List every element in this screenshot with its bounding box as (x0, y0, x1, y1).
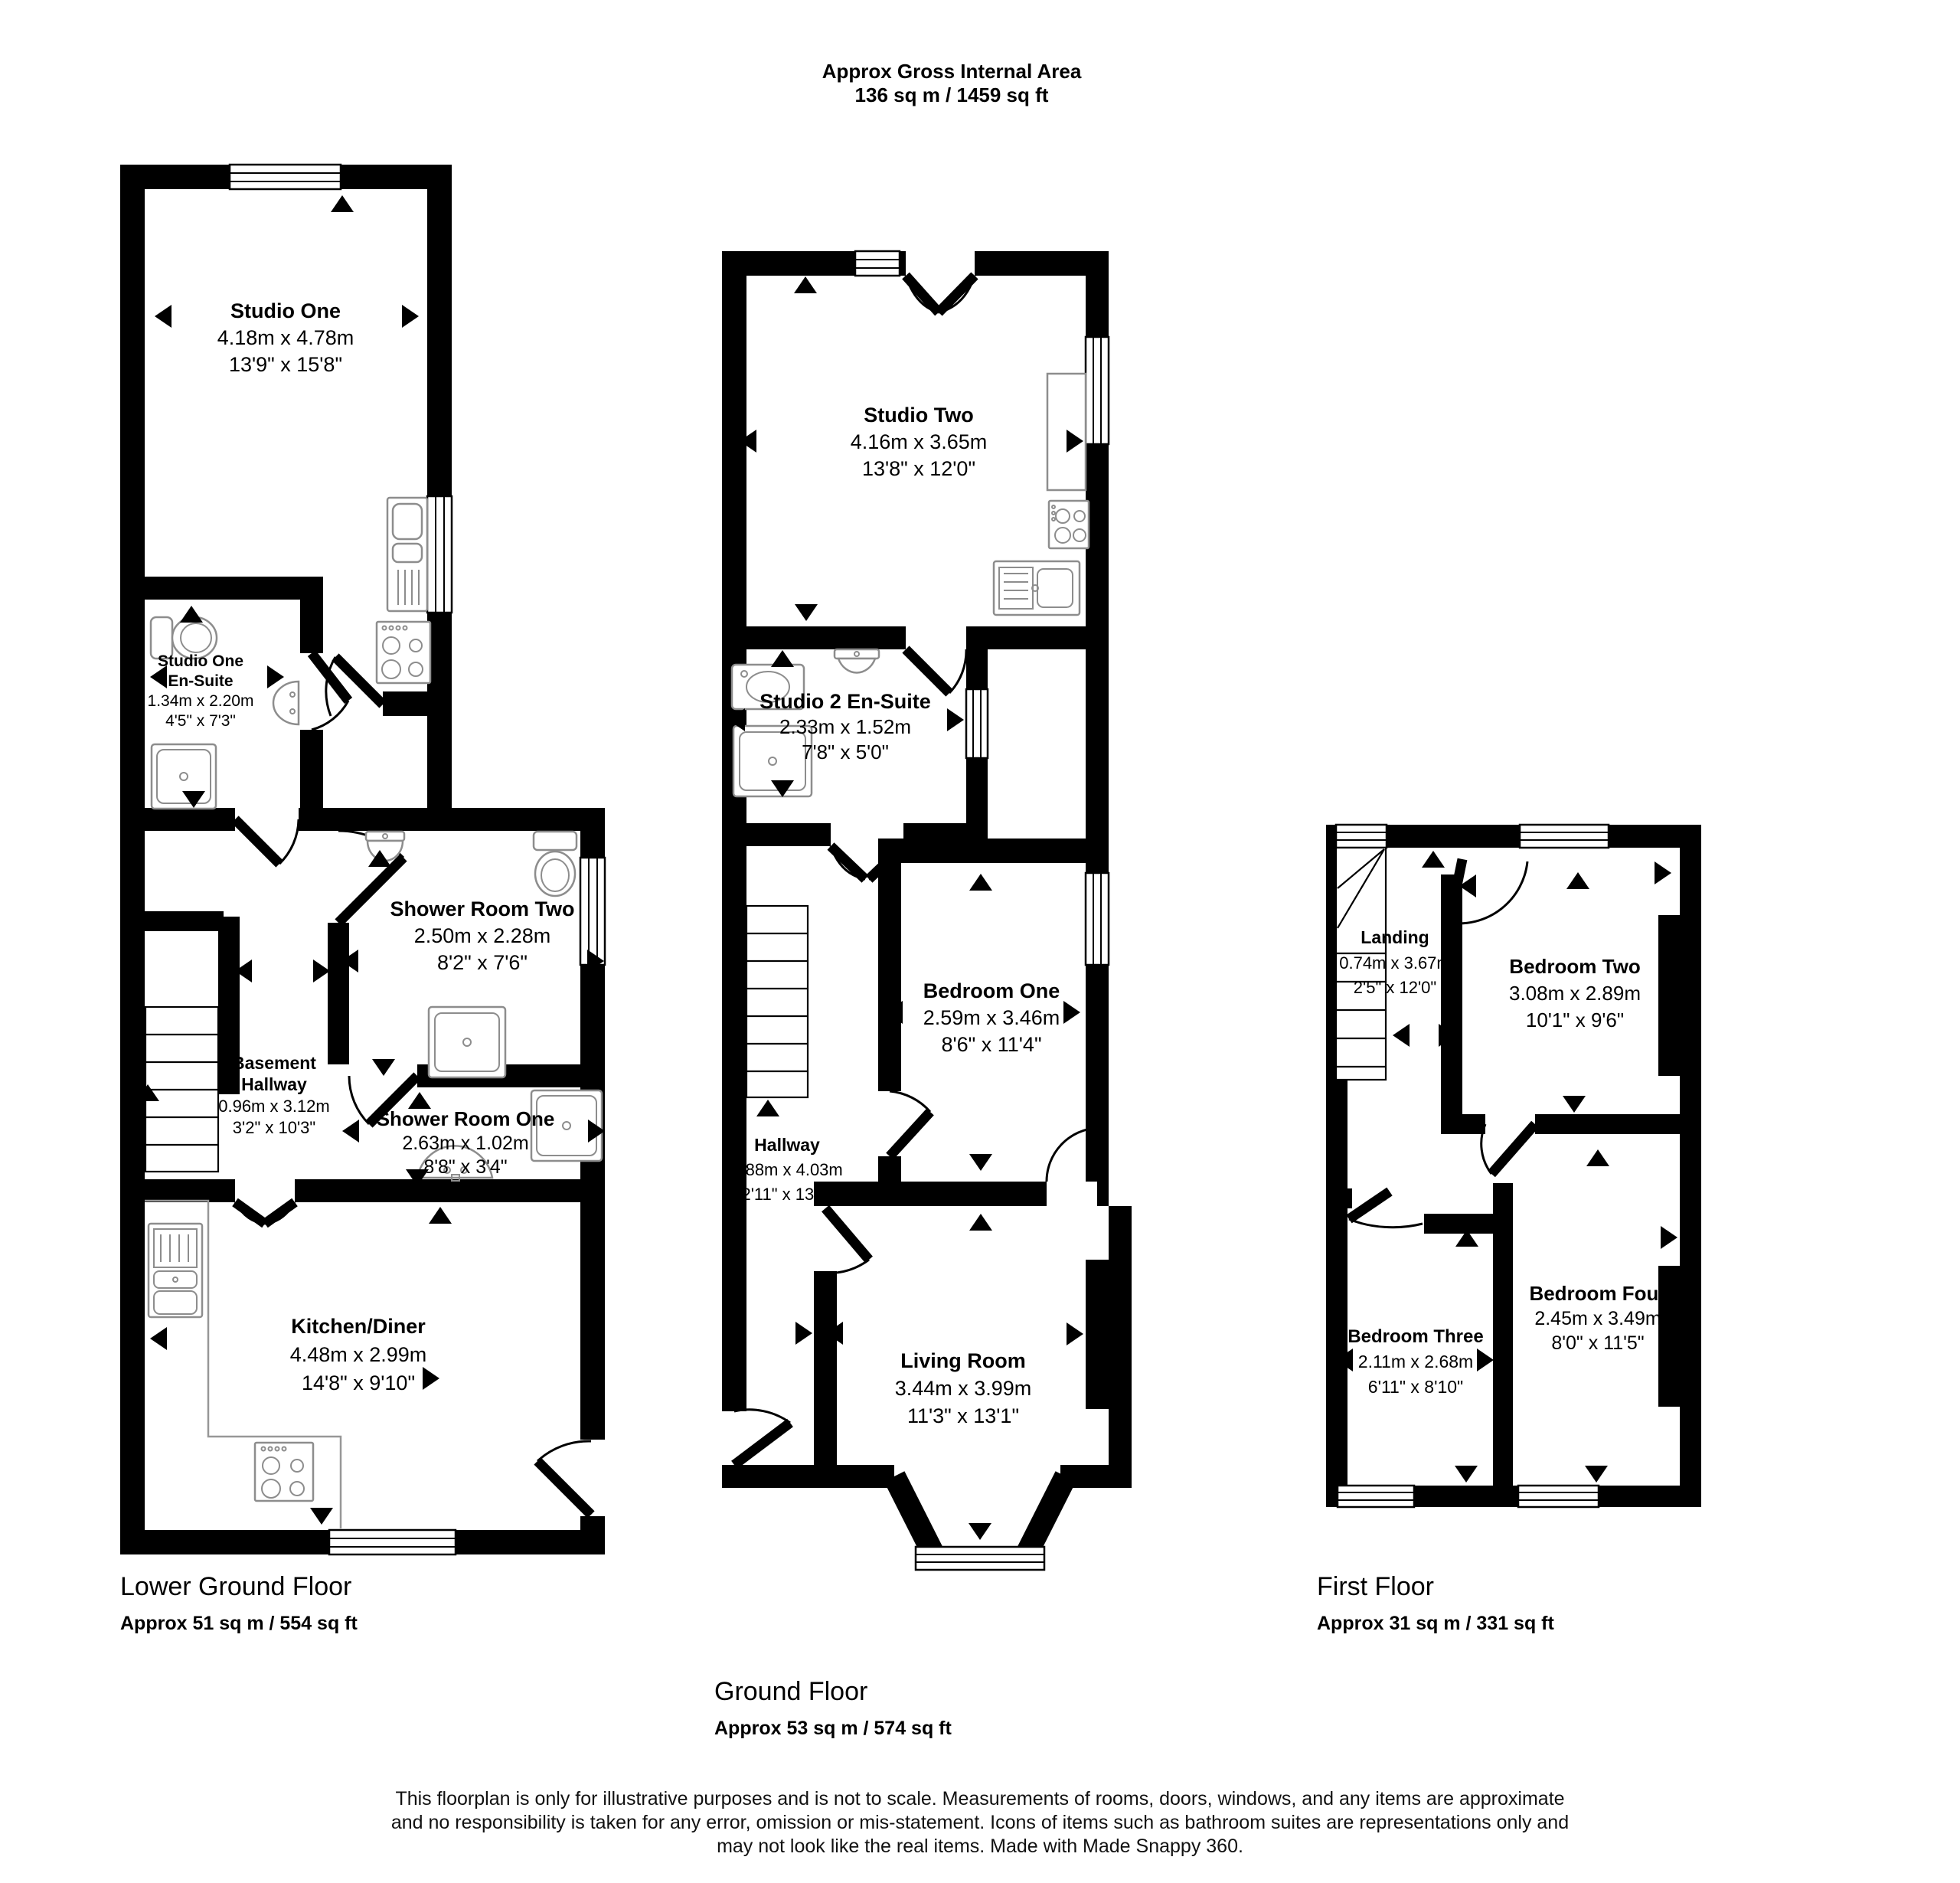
window (427, 496, 452, 613)
lower-ground-floor-plan: Studio One 4.18m x 4.78m 13'9" x 15'8" S… (120, 165, 605, 1554)
basin-icon (273, 682, 299, 724)
room-dims-bedroom-two-metric: 3.08m x 2.89m (1509, 982, 1641, 1005)
window (230, 165, 341, 189)
room-dims-bedroom-one-imperial: 8'6" x 11'4" (941, 1033, 1041, 1056)
gf-doors (734, 276, 1097, 1465)
window (1338, 1486, 1414, 1507)
room-label-basement-hallway-1: Basement (232, 1053, 316, 1073)
room-dims-bedroom-one-metric: 2.59m x 3.46m (923, 1006, 1060, 1029)
pedestal-basin-icon (835, 649, 879, 672)
shower-tray-icon (152, 744, 216, 809)
room-dims-hallway-imperial: 2'11" x 13'3" (741, 1185, 832, 1204)
room-dims-studio-2-ensuite-metric: 2.33m x 1.52m (779, 715, 911, 738)
basement-stairs (145, 1007, 218, 1172)
kitchen-sink-icon (149, 1224, 202, 1317)
floorplan-canvas: Studio One 4.18m x 4.78m 13'9" x 15'8" S… (0, 0, 1960, 1883)
room-dims-studio-one-metric: 4.18m x 4.78m (217, 326, 354, 349)
room-dims-shower-room-one-metric: 2.63m x 1.02m (402, 1133, 528, 1154)
window (916, 1547, 1044, 1570)
room-dims-landing-metric: 0.74m x 3.67m (1339, 953, 1451, 973)
ground-floor-plan: Studio Two 4.16m x 3.65m 13'8" x 12'0" S… (722, 251, 1132, 1570)
room-dims-living-room-metric: 3.44m x 3.99m (895, 1377, 1032, 1400)
room-dims-bedroom-two-imperial: 10'1" x 9'6" (1526, 1009, 1624, 1031)
window (1086, 873, 1109, 965)
room-dims-studio-two-metric: 4.16m x 3.65m (851, 430, 988, 453)
room-dims-bedroom-three-metric: 2.11m x 2.68m (1358, 1352, 1473, 1371)
room-dims-shower-room-one-imperial: 8'8" x 3'4" (423, 1156, 507, 1178)
room-label-bedroom-four: Bedroom Four (1529, 1282, 1666, 1305)
toilet-icon (534, 832, 577, 896)
room-dims-basement-hallway-metric: 0.96m x 3.12m (218, 1097, 330, 1116)
first-floor-plan: Landing 0.74m x 3.67m 2'5" x 12'0" Bedro… (1326, 825, 1701, 1507)
room-label-shower-room-two: Shower Room Two (390, 897, 575, 920)
room-label-studio-one-ensuite-1: Studio One (158, 652, 243, 670)
window (329, 1530, 456, 1554)
room-dims-kitchen-diner-imperial: 14'8" x 9'10" (302, 1371, 415, 1394)
room-label-kitchen-diner: Kitchen/Diner (291, 1315, 426, 1338)
room-label-living-room: Living Room (900, 1349, 1026, 1372)
room-label-studio-one-ensuite-2: En-Suite (168, 672, 233, 690)
room-label-shower-room-one: Shower Room One (377, 1107, 555, 1130)
room-label-basement-hallway-2: Hallway (241, 1074, 307, 1094)
room-dims-studio-one-imperial: 13'9" x 15'8" (229, 353, 342, 376)
room-dims-bedroom-three-imperial: 6'11" x 8'10" (1368, 1377, 1463, 1397)
window (1520, 825, 1609, 848)
room-label-landing: Landing (1361, 927, 1429, 947)
lgf-room-labels: Studio One 4.18m x 4.78m 13'9" x 15'8" S… (148, 299, 575, 1394)
room-dims-bedroom-four-imperial: 8'0" x 11'5" (1551, 1332, 1644, 1354)
stove-icon (377, 622, 430, 683)
room-label-bedroom-one: Bedroom One (923, 979, 1060, 1002)
room-dims-shower-room-two-imperial: 8'2" x 7'6" (437, 951, 528, 974)
window (1518, 1486, 1599, 1507)
room-label-studio-two: Studio Two (864, 404, 973, 427)
room-dims-bedroom-four-metric: 2.45m x 3.49m (1534, 1308, 1661, 1329)
room-dims-landing-imperial: 2'5" x 12'0" (1354, 978, 1436, 997)
room-label-studio-2-ensuite: Studio 2 En-Suite (759, 690, 931, 713)
kitchen-sink-icon (994, 561, 1080, 615)
shower-tray-icon (429, 1007, 505, 1077)
room-dims-studio-two-imperial: 13'8" x 12'0" (862, 457, 975, 480)
room-dims-studio-one-ensuite-imperial: 4'5" x 7'3" (165, 712, 236, 730)
room-label-studio-one: Studio One (230, 299, 341, 322)
room-dims-shower-room-two-metric: 2.50m x 2.28m (414, 924, 551, 947)
room-dims-kitchen-diner-metric: 4.48m x 2.99m (290, 1343, 427, 1366)
room-dims-hallway-metric: 0.88m x 4.03m (731, 1160, 843, 1179)
room-label-bedroom-two: Bedroom Two (1509, 955, 1640, 978)
window (1086, 337, 1109, 444)
gf-stairs (746, 906, 808, 1097)
room-dims-studio-2-ensuite-imperial: 7'8" x 5'0" (802, 740, 889, 763)
room-dims-living-room-imperial: 11'3" x 13'1" (907, 1404, 1019, 1427)
stove-icon (1049, 501, 1089, 548)
window (580, 858, 605, 965)
window (855, 251, 900, 276)
room-label-hallway: Hallway (754, 1135, 820, 1155)
stove-icon (255, 1443, 313, 1501)
room-dims-basement-hallway-imperial: 3'2" x 10'3" (233, 1118, 315, 1137)
room-dims-studio-one-ensuite-metric: 1.34m x 2.20m (148, 692, 254, 710)
sink-unit-icon (387, 498, 427, 611)
room-label-bedroom-three: Bedroom Three (1347, 1326, 1483, 1347)
window (966, 689, 988, 758)
window (1336, 825, 1387, 848)
